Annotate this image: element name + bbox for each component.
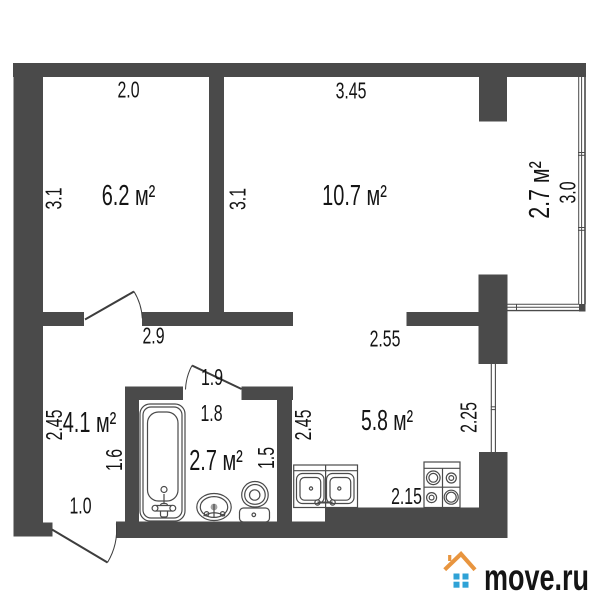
svg-text:1.9: 1.9 (201, 365, 223, 391)
svg-text:2.45: 2.45 (291, 410, 317, 441)
svg-text:2.15: 2.15 (391, 484, 422, 510)
svg-text:10.7 м²: 10.7 м² (322, 181, 387, 212)
svg-text:5.8 м²: 5.8 м² (361, 405, 413, 437)
svg-text:1.6: 1.6 (102, 449, 128, 471)
svg-text:3.1: 3.1 (42, 187, 68, 209)
svg-text:2.9: 2.9 (142, 324, 164, 350)
svg-text:1.8: 1.8 (200, 401, 222, 427)
svg-text:2.7 м²: 2.7 м² (524, 161, 556, 218)
svg-text:2.25: 2.25 (457, 402, 483, 433)
svg-text:3.0: 3.0 (556, 181, 582, 203)
svg-text:3.1: 3.1 (226, 188, 252, 210)
svg-text:2.0: 2.0 (117, 78, 139, 104)
svg-text:4.1 м²: 4.1 м² (63, 408, 117, 439)
svg-text:2.7 м²: 2.7 м² (189, 446, 243, 477)
svg-text:1.0: 1.0 (69, 494, 91, 520)
svg-text:3.45: 3.45 (336, 79, 367, 105)
svg-text:2.55: 2.55 (370, 327, 401, 353)
svg-text:move.ru: move.ru (484, 557, 589, 598)
svg-text:6.2 м²: 6.2 м² (102, 181, 156, 212)
svg-text:1.5: 1.5 (254, 447, 280, 469)
